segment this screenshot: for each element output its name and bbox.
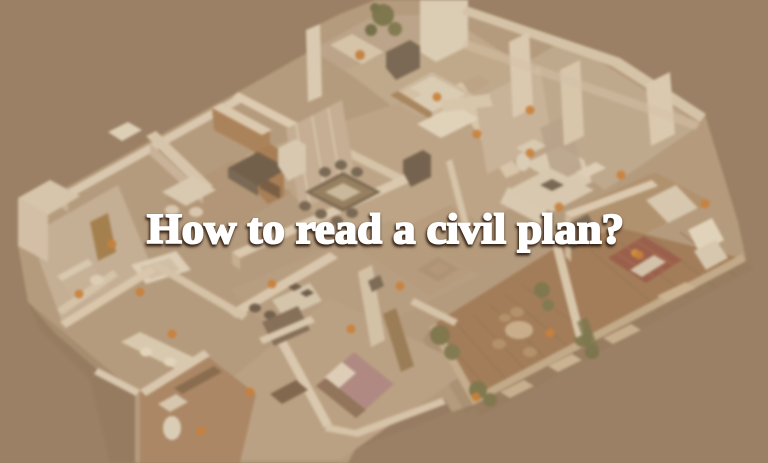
svg-text:How to read a civil plan?: How to read a civil plan? (147, 207, 624, 253)
